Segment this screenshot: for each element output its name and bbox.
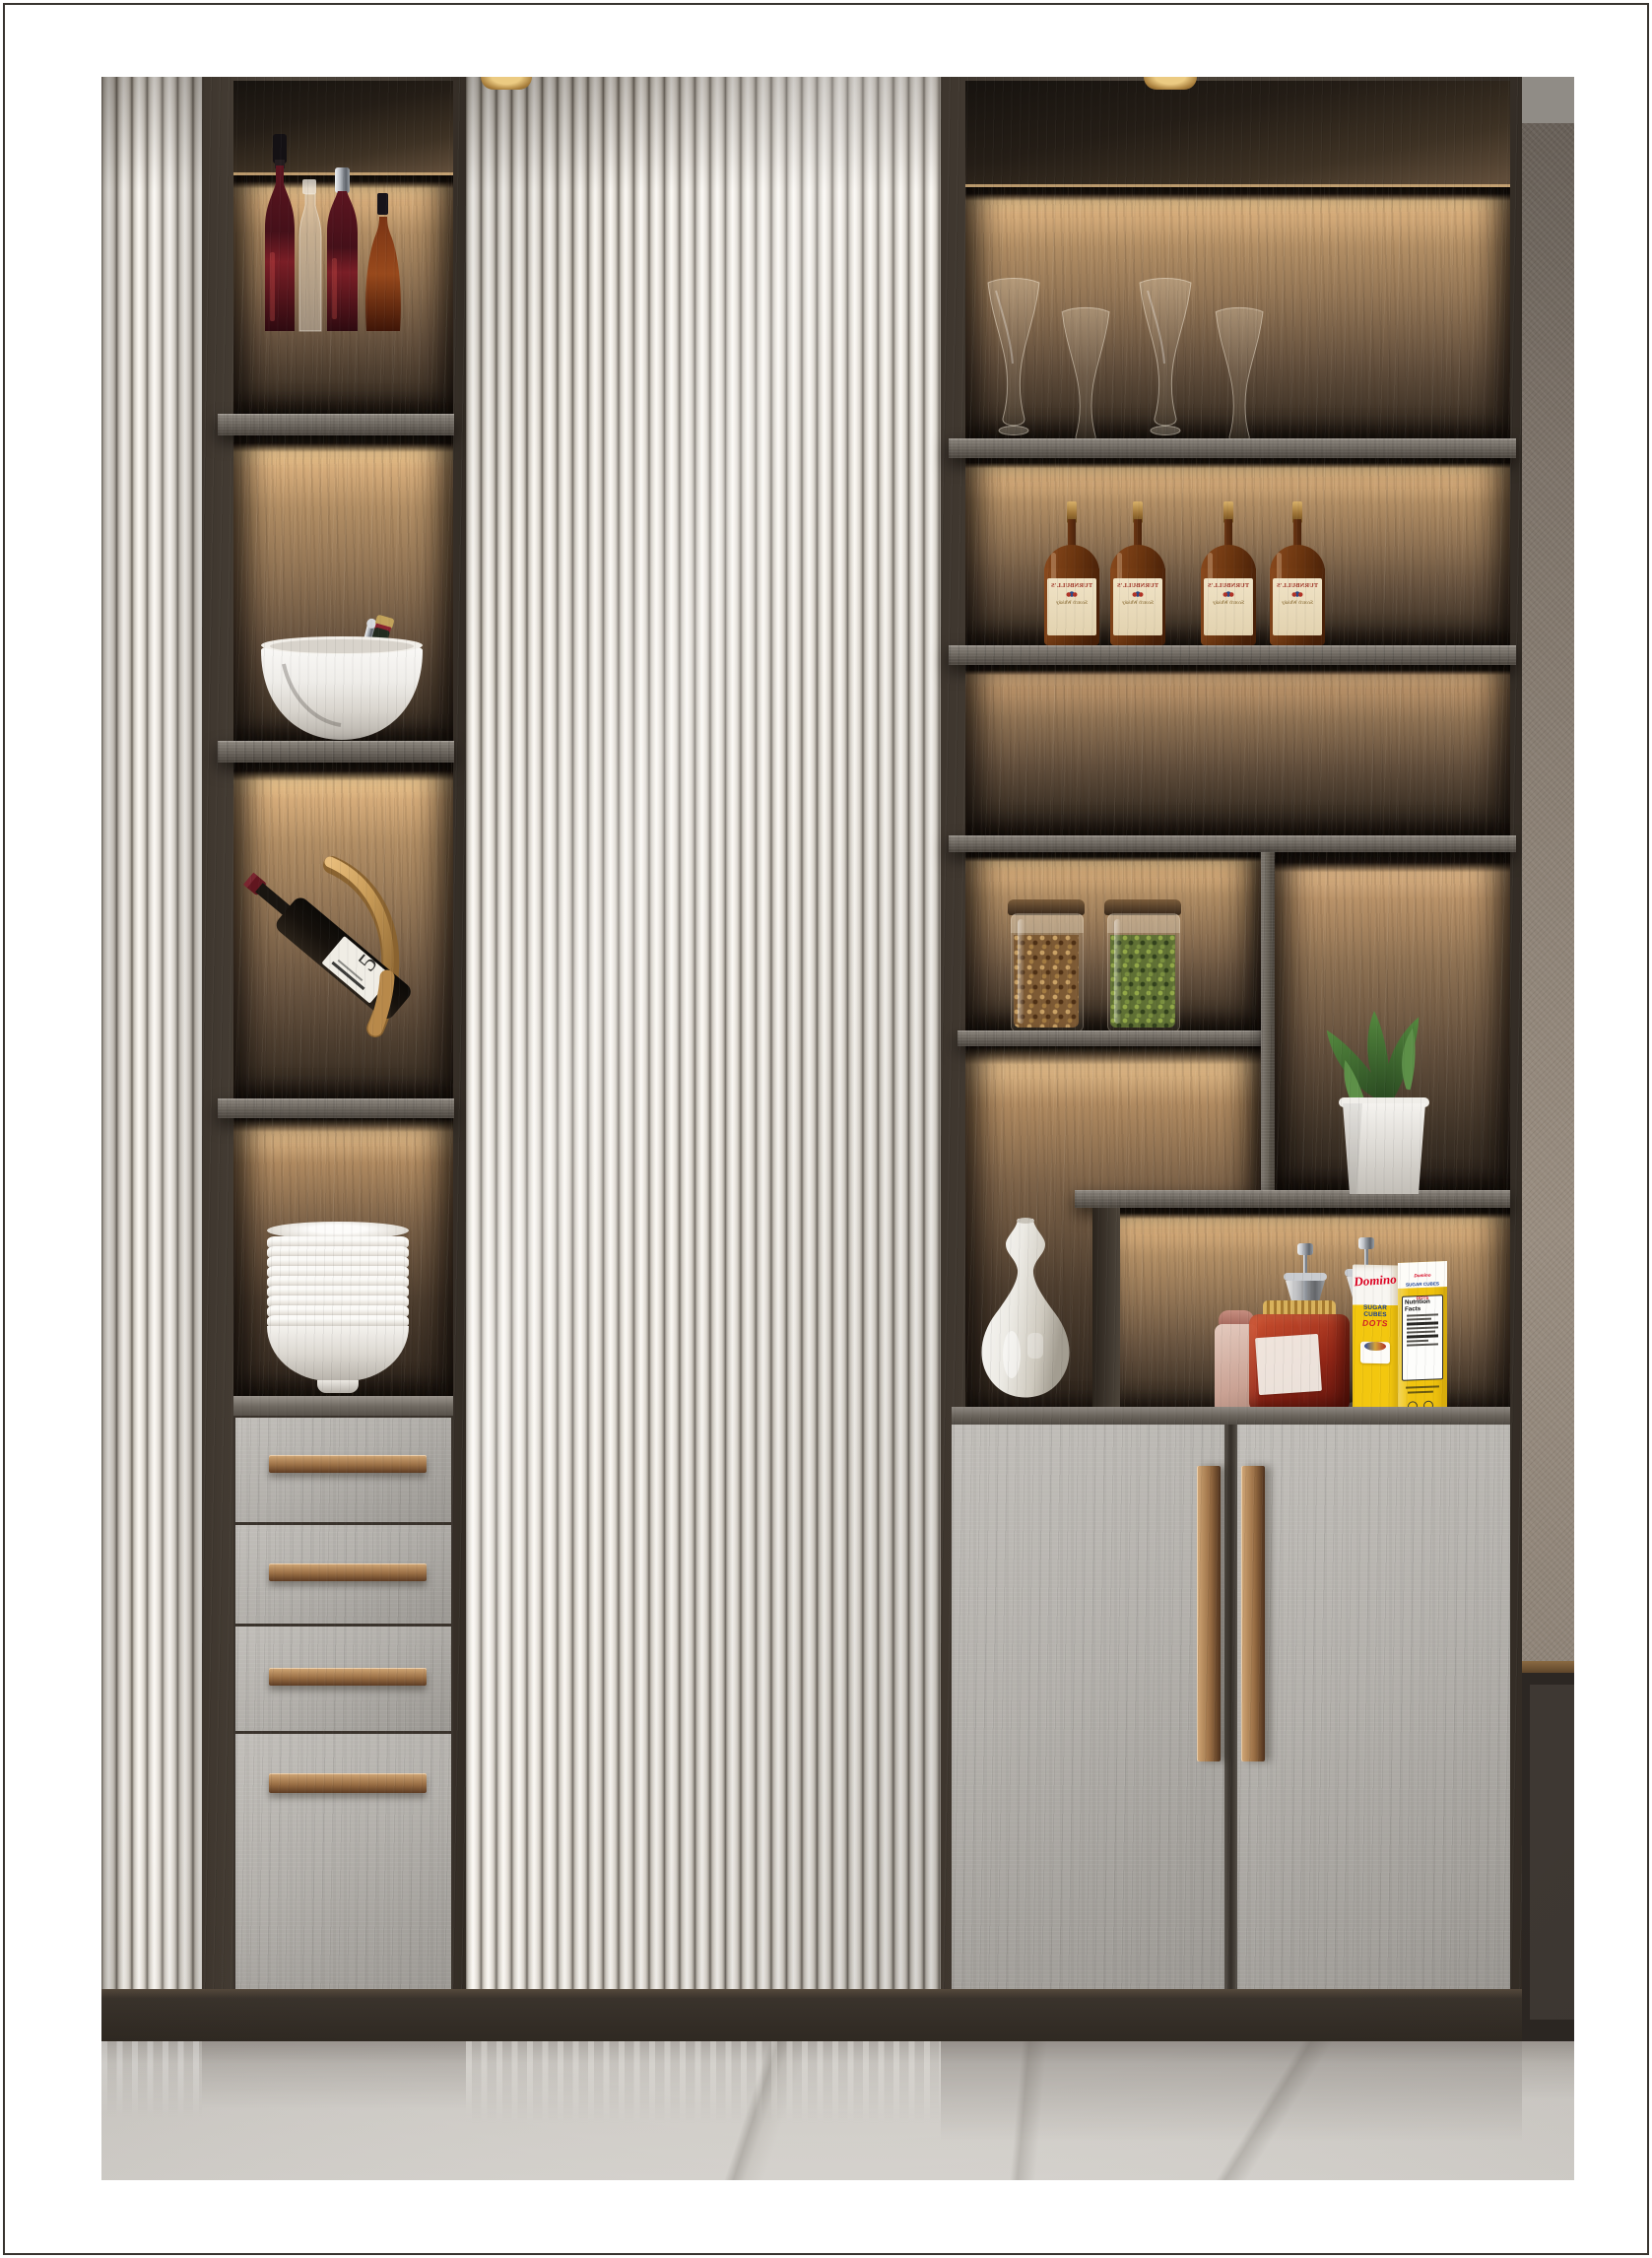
empty-lit-niche	[965, 665, 1510, 835]
bottle-body	[1270, 568, 1325, 645]
tulip-glass	[1216, 307, 1263, 440]
wine-stand-niche	[233, 763, 453, 1098]
door-handle	[1197, 1466, 1221, 1761]
recycle-mark-icon	[1423, 1401, 1433, 1411]
silver-bottle-cap	[335, 167, 350, 193]
red-bottle	[265, 166, 295, 331]
brew-stand	[1345, 1237, 1388, 1411]
foil-cap	[1292, 501, 1302, 523]
whisky-bottle: TURNBULL'S Scotch Whisky	[1044, 501, 1099, 645]
jar-contents-herbs	[1110, 935, 1175, 1028]
whisky-brand-text: TURNBULL'S	[1047, 582, 1096, 589]
ice-bucket	[256, 615, 428, 743]
sugar-box-front: Domino SUGAR CUBES DOTS	[1353, 1265, 1398, 1415]
wine-label-numeral: 5	[353, 949, 383, 977]
bottle-highlight	[270, 252, 275, 321]
shelf-board	[949, 835, 1516, 852]
vase-mouth	[1017, 1218, 1034, 1224]
bottle-neck	[1293, 519, 1301, 549]
floor-reflection-column	[202, 2041, 466, 2114]
interior-render: 5	[0, 0, 1652, 2258]
canister-lid	[1219, 1310, 1254, 1326]
bottle-highlight	[1277, 553, 1282, 635]
fluted-pilaster	[101, 77, 202, 1989]
accent-wall	[1522, 123, 1574, 1661]
brass-ribbon	[330, 862, 388, 1026]
whisky-subtitle-text: Scotch Whisky	[1047, 600, 1096, 606]
drawer	[235, 1734, 451, 2001]
shelf-board	[949, 645, 1516, 665]
bowl-rim	[267, 1286, 409, 1298]
jar-lid	[1104, 899, 1181, 915]
bowl-rim	[267, 1305, 409, 1318]
side-top-band: Domino SUGAR CUBES DOTS	[1398, 1261, 1447, 1289]
candy-jar	[1249, 1300, 1350, 1412]
bottle-collar	[275, 160, 285, 168]
bowl-rim	[267, 1246, 409, 1259]
bottle-shoulder	[1270, 545, 1325, 572]
glassware-niche	[965, 187, 1510, 438]
candy-jar-body	[1249, 1314, 1350, 1412]
foil-cap	[1223, 501, 1233, 523]
nutrition-line	[1407, 1318, 1431, 1321]
bowl-rim	[267, 1266, 409, 1279]
whisky-bottle: TURNBULL'S Scotch Whisky	[1270, 501, 1325, 645]
wine-label	[321, 936, 392, 1004]
display-column-left: 5	[202, 77, 466, 1989]
nutrition-line	[1407, 1340, 1428, 1343]
fluted-door-panel	[466, 77, 941, 1989]
pot-shading	[1343, 1103, 1362, 1194]
bottle-body	[1044, 568, 1099, 645]
brass-ribbon-back	[332, 865, 390, 1029]
whisky-subtitle-text: Scotch Whisky	[1204, 600, 1253, 606]
liquor-bottle-group	[244, 134, 417, 337]
bottle-neck	[1134, 519, 1142, 549]
vertical-divider	[1261, 852, 1275, 1190]
column-ceiling	[233, 81, 453, 175]
storage-jar	[1008, 899, 1085, 1030]
floor-reflection-pilaster	[101, 2041, 202, 2124]
nutrition-line	[1407, 1334, 1438, 1338]
side-table-top	[1522, 1661, 1574, 1673]
sugar-box-variant-text: DOTS	[1353, 1318, 1398, 1329]
nutrition-line	[1407, 1343, 1438, 1346]
niche-side-wall	[1092, 1208, 1120, 1412]
bottle-body	[1110, 568, 1165, 645]
whisky-subtitle-text: Scotch Whisky	[1113, 600, 1162, 606]
nutrition-line	[1407, 1313, 1438, 1316]
sugar-box-side: Domino SUGAR CUBES DOTS Nutrition Facts	[1398, 1261, 1447, 1415]
whisky-brand-text: TURNBULL'S	[1204, 582, 1253, 589]
drawer	[235, 1627, 451, 1731]
bottle-cap	[273, 134, 287, 164]
floor-reflection-cabinet	[941, 2041, 1522, 2150]
bowl-rim	[267, 1276, 409, 1289]
ice-bucket-niche	[233, 435, 453, 741]
bottle-shoulder	[1110, 545, 1165, 572]
jar-contents-nuts	[1014, 935, 1079, 1028]
glassware-group	[978, 277, 1293, 440]
niche-top-board	[1075, 1190, 1510, 1208]
bottle-highlight	[332, 258, 337, 319]
whisky-brand-text: TURNBULL'S	[1113, 582, 1162, 589]
whisky-label: TURNBULL'S Scotch Whisky	[1273, 578, 1322, 635]
tulip-glass	[988, 279, 1039, 435]
amber-bottle	[365, 217, 401, 331]
label-crest-icon	[1130, 590, 1146, 599]
sugar-box-brand-text: Domino	[1352, 1271, 1398, 1290]
jar-lid	[1008, 899, 1085, 915]
foil-cap	[1067, 501, 1077, 523]
display-vase	[966, 1215, 1085, 1412]
shelf-board	[958, 1030, 1269, 1046]
whisky-brand-text: TURNBULL'S	[1273, 582, 1322, 589]
side-product-text: SUGAR CUBES	[1398, 1281, 1447, 1288]
nutrition-line	[1407, 1326, 1438, 1329]
bottle-body	[1201, 568, 1256, 645]
tulip-glass	[1140, 279, 1191, 435]
drawer	[235, 1418, 451, 1522]
candy-jar-lid	[1263, 1300, 1336, 1316]
ceiling-spotlight-icon	[481, 77, 532, 90]
clear-bottle	[299, 194, 321, 331]
shelf-board	[949, 438, 1516, 458]
kosher-mark-icon	[1408, 1401, 1418, 1411]
drawer-handle	[269, 1773, 427, 1793]
pot-rim	[1339, 1097, 1429, 1107]
whisky-bottle: TURNBULL'S Scotch Whisky	[1110, 501, 1165, 645]
wall-top-band	[1522, 77, 1574, 123]
display-section-right: TURNBULL'S Scotch Whisky TURNBULL'S Scot…	[941, 77, 1522, 1989]
cabinet-door-right	[1237, 1425, 1510, 2003]
drawer-unit-top	[233, 1396, 453, 1416]
bowl-stack	[267, 1222, 409, 1393]
jar-highlight	[1114, 919, 1121, 1024]
side-small-text-line	[1406, 1385, 1439, 1388]
sugar-box-product-text: SUGAR CUBES	[1353, 1304, 1398, 1319]
bar-tongs-icon	[359, 618, 377, 656]
vase-window-reflection	[1027, 1333, 1043, 1359]
wine-bottle: 5	[237, 863, 414, 1023]
vase-highlight	[1003, 1331, 1021, 1378]
door-handle	[1241, 1466, 1265, 1761]
jar-niche	[965, 852, 1261, 1030]
liquor-shelf-niche	[233, 175, 453, 414]
label-crest-icon	[1289, 590, 1305, 599]
whisky-label: TURNBULL'S Scotch Whisky	[1047, 578, 1096, 635]
drawer	[235, 1525, 451, 1624]
red-bottle-2	[327, 191, 358, 331]
label-crest-icon	[1064, 590, 1080, 599]
drawer-handle	[269, 1563, 427, 1581]
shelf-board	[218, 1098, 454, 1118]
side-table-silhouette	[1522, 1661, 1574, 2041]
label-crest-icon	[1221, 590, 1236, 599]
whisky-bottle: TURNBULL'S Scotch Whisky	[1201, 501, 1256, 645]
certification-marks	[1408, 1400, 1447, 1412]
bottle-shoulder	[1201, 545, 1256, 572]
vase-body	[981, 1219, 1069, 1398]
brew-stand	[1284, 1243, 1327, 1411]
floor-reflection-door	[466, 2041, 941, 2132]
plant-pot	[1343, 1103, 1425, 1194]
storage-jar	[1104, 899, 1181, 1030]
pilaster-shading	[101, 77, 202, 1989]
bottle-neck	[1224, 519, 1232, 549]
clear-bottle-cap	[302, 179, 316, 194]
canister-body	[1215, 1324, 1258, 1412]
brew-stand-pair	[1268, 1220, 1406, 1413]
foil-cap	[1133, 501, 1143, 523]
base-cabinet-top	[952, 1407, 1510, 1425]
section-ceiling	[965, 81, 1510, 187]
whisky-label: TURNBULL'S Scotch Whisky	[1204, 578, 1253, 635]
bowl-stack-niche	[233, 1118, 453, 1396]
marble-floor	[101, 2041, 1574, 2180]
brass-ribbon-front	[375, 977, 387, 1029]
nutrition-line	[1407, 1331, 1435, 1334]
side-small-text-line	[1408, 1391, 1433, 1394]
bottom-bowl	[267, 1326, 409, 1381]
counter-niche	[1092, 1208, 1510, 1412]
tulip-glass	[1062, 307, 1109, 440]
cabinet-photo: 5	[101, 77, 1574, 2180]
bottle-highlight	[1051, 553, 1056, 635]
bottle-neck	[1068, 519, 1076, 549]
whisky-label: TURNBULL'S Scotch Whisky	[1113, 578, 1162, 635]
side-variant-text: DOTS	[1417, 1295, 1429, 1300]
jar-glass	[1107, 913, 1180, 1032]
bucket-inner	[270, 639, 414, 653]
plinth-kickboard	[101, 1989, 1522, 2041]
bowl-rim	[267, 1256, 409, 1269]
bottle-highlight	[1208, 553, 1213, 635]
sugar-cube-graphic	[1360, 1342, 1390, 1364]
nutrition-panel: Nutrition Facts	[1402, 1295, 1443, 1381]
nutrition-line	[1407, 1321, 1438, 1325]
candy-jar-label	[1255, 1334, 1322, 1395]
shelf-board	[218, 414, 454, 435]
plant-niche	[1275, 852, 1510, 1190]
top-bowl-opening	[267, 1222, 409, 1239]
door-gap	[1224, 1425, 1237, 2003]
ceiling-spotlight-icon	[1144, 77, 1197, 90]
amber-bottle-cap	[377, 193, 388, 215]
pink-canister	[1215, 1310, 1258, 1412]
bowl-rim	[267, 1315, 409, 1328]
door-sheen	[466, 77, 941, 1989]
bucket-rim	[261, 636, 423, 654]
side-brand-text: Domino	[1414, 1273, 1430, 1279]
cabinet-door-left	[952, 1425, 1224, 2003]
drawer-handle	[269, 1668, 427, 1686]
vase-niche	[965, 1046, 1261, 1412]
whisky-niche	[965, 458, 1510, 645]
bottle-shoulder	[1044, 545, 1099, 572]
jar-glass	[1011, 913, 1084, 1032]
whisky-subtitle-text: Scotch Whisky	[1273, 600, 1322, 606]
bowl-foot	[317, 1380, 359, 1393]
plant-leaves	[1305, 1011, 1463, 1197]
drawer-handle	[269, 1455, 427, 1473]
drawer-stack	[233, 1416, 453, 2001]
bucket-bowl	[261, 641, 423, 740]
bucket-reflection	[284, 664, 341, 725]
cube-badge-icon	[1364, 1342, 1386, 1351]
bottle-highlight	[1117, 553, 1122, 635]
shelf-board	[218, 741, 454, 763]
bowl-rim	[267, 1295, 409, 1308]
champagne-bottle	[364, 615, 394, 664]
jar-highlight	[1018, 919, 1024, 1024]
nutrition-title-text: Nutrition Facts	[1405, 1297, 1440, 1312]
bowl-rim	[267, 1236, 409, 1249]
side-table-panel	[1530, 1685, 1574, 2020]
floor-reflection-wall	[1522, 2041, 1574, 2104]
potted-plant	[1305, 1005, 1463, 1197]
wine-display-stand: 5	[237, 831, 439, 1099]
